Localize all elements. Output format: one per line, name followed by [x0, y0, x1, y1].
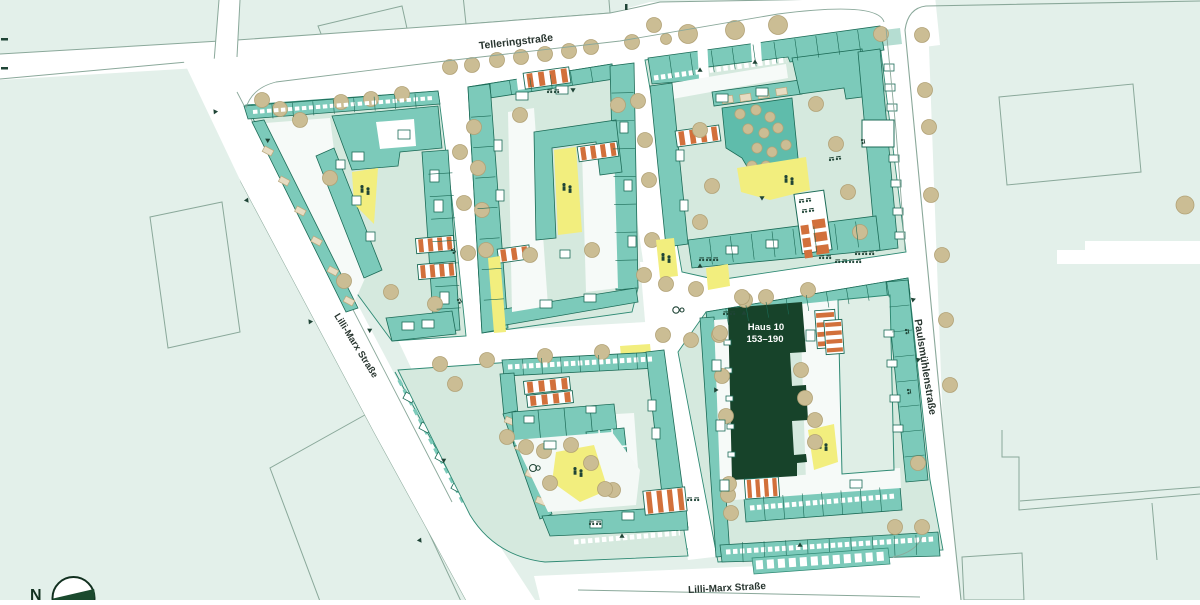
svg-text:Haus 10: Haus 10	[748, 322, 784, 333]
svg-text:153–190: 153–190	[747, 334, 784, 345]
svg-text:N: N	[30, 587, 42, 600]
